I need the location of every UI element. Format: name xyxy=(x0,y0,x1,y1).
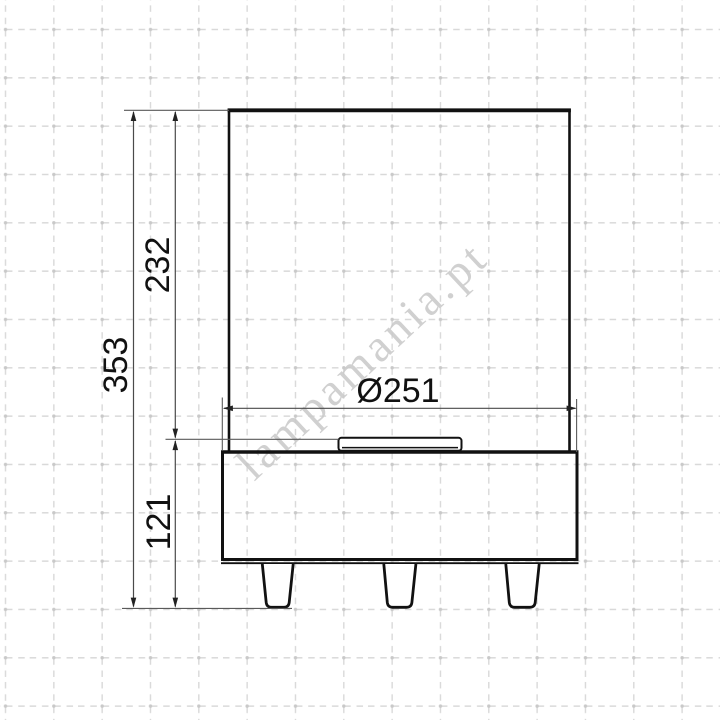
drawing-canvas: lampamania.pt 353 232 xyxy=(0,0,720,720)
dim-label-diameter: Ø251 xyxy=(356,372,439,410)
burner-tray xyxy=(339,438,462,451)
leg-right xyxy=(506,564,539,607)
leg-left xyxy=(262,564,293,607)
dim-label-total-height: 353 xyxy=(97,337,135,394)
technical-drawing: lampamania.pt 353 232 xyxy=(0,0,720,720)
dim-label-upper-height: 232 xyxy=(139,237,177,294)
leg-center xyxy=(384,564,416,607)
dim-label-base-height: 121 xyxy=(140,494,178,551)
